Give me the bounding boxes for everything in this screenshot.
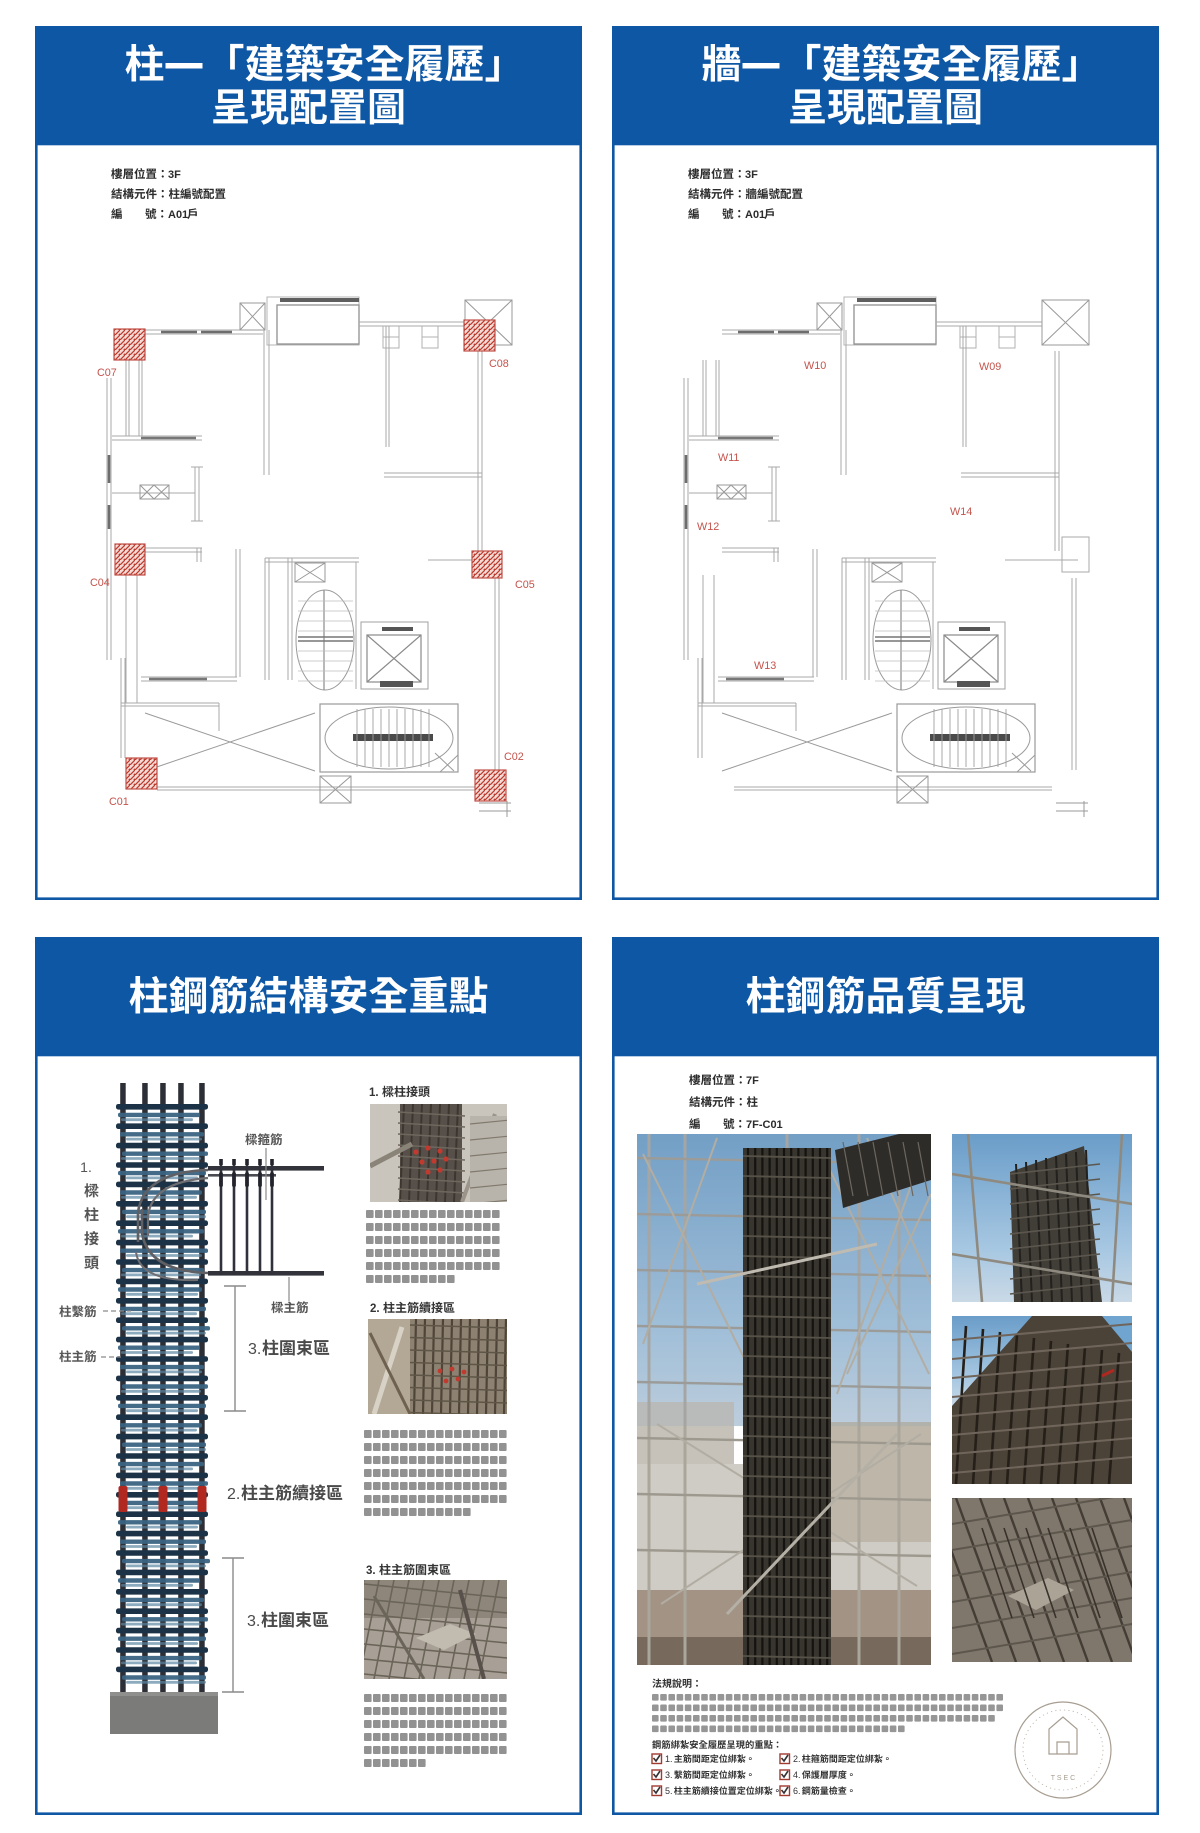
svg-text:C04: C04	[90, 577, 110, 589]
svg-text:C07: C07	[97, 367, 117, 379]
svg-text:7F-C01: 7F-C01	[746, 1119, 783, 1131]
svg-text:W14: W14	[950, 506, 972, 518]
svg-text:W13: W13	[754, 660, 776, 672]
svg-text:C05: C05	[515, 579, 535, 591]
svg-text:6.: 6.	[793, 1786, 801, 1796]
svg-text:A01: A01	[168, 209, 188, 221]
svg-text:T S E C: T S E C	[1051, 1775, 1075, 1782]
svg-text:C02: C02	[504, 751, 524, 763]
svg-text:1.: 1.	[80, 1159, 92, 1175]
svg-text:2.: 2.	[370, 1303, 380, 1315]
svg-text:3F: 3F	[168, 169, 181, 181]
svg-text:C08: C08	[489, 358, 509, 370]
svg-text:2.: 2.	[793, 1754, 801, 1764]
svg-text:A01: A01	[745, 209, 765, 221]
svg-text:C01: C01	[109, 796, 129, 808]
svg-text:W09: W09	[979, 361, 1001, 373]
svg-text:7F: 7F	[746, 1075, 759, 1087]
svg-text:W10: W10	[804, 360, 826, 372]
svg-text:3.: 3.	[247, 1613, 260, 1630]
svg-text:3F: 3F	[745, 169, 758, 181]
svg-text:3.: 3.	[248, 1341, 261, 1358]
svg-text:3.: 3.	[665, 1770, 673, 1780]
svg-text:5.: 5.	[665, 1786, 673, 1796]
svg-text:4.: 4.	[793, 1770, 801, 1780]
svg-text:2.: 2.	[227, 1486, 240, 1503]
svg-text:3.: 3.	[366, 1565, 376, 1577]
svg-text:1.: 1.	[665, 1754, 673, 1764]
svg-text:W12: W12	[697, 521, 719, 533]
svg-text:1.: 1.	[369, 1087, 379, 1099]
svg-text:W11: W11	[718, 452, 739, 464]
